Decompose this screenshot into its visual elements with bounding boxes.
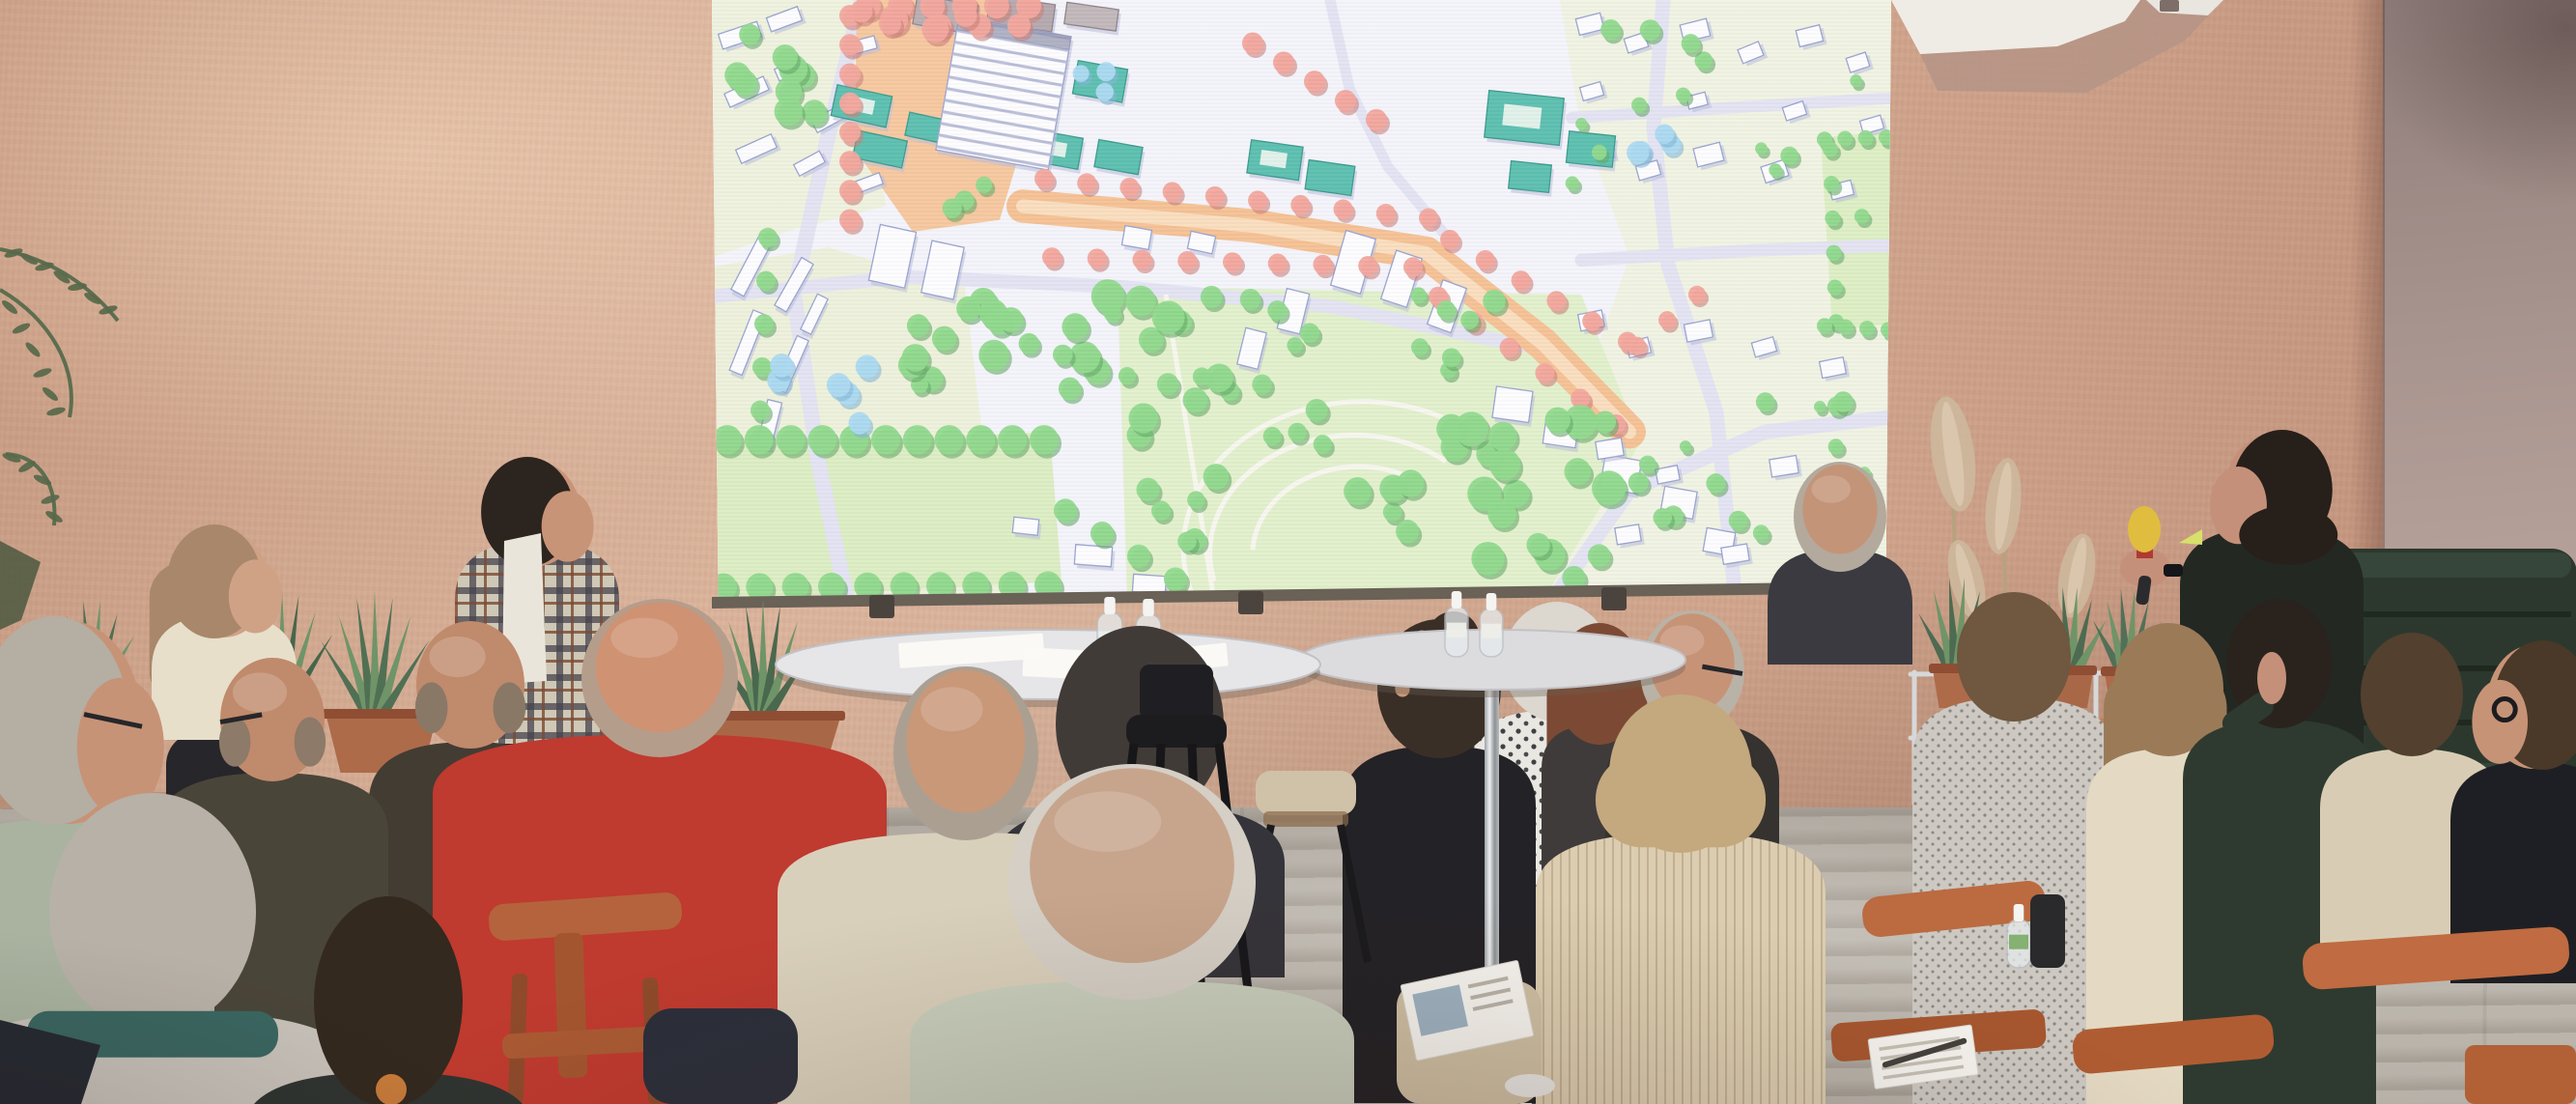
head-shine	[1054, 791, 1161, 851]
bottle-label	[2009, 935, 2028, 949]
person-hair	[314, 896, 463, 1104]
olive-leaf	[3, 246, 23, 260]
person-hair-nape	[2239, 505, 2337, 564]
watch	[2164, 564, 2183, 577]
person-face	[2472, 680, 2528, 764]
person-hair	[1957, 592, 2071, 722]
person-hair	[2361, 633, 2463, 756]
scene-layer	[0, 0, 2576, 1104]
head-shine	[1812, 475, 1851, 503]
chair-rail	[2465, 1045, 2576, 1104]
olive-leaf	[41, 385, 60, 403]
person-face	[229, 559, 282, 633]
olive-leaf	[11, 322, 31, 336]
sansevieria-left	[321, 591, 429, 715]
screen-foot	[1238, 591, 1263, 614]
audience-shoulder	[643, 1008, 798, 1104]
head-shine	[429, 637, 485, 677]
sweater-logo	[2179, 529, 2202, 545]
screen-foot	[1601, 587, 1627, 610]
person-body	[1536, 833, 1826, 1104]
chair-slat	[553, 933, 587, 1079]
vent-notch	[2160, 0, 2179, 12]
bottle-cap	[1143, 599, 1153, 616]
thermos	[2030, 894, 2065, 968]
olive-branch	[0, 246, 119, 630]
person-hair-side	[415, 682, 448, 733]
head-shine	[920, 687, 982, 731]
person-face	[542, 491, 594, 561]
olive-frond	[0, 541, 41, 630]
head-shine	[610, 618, 678, 659]
bottle-label	[1482, 624, 1501, 638]
person-hair-side	[219, 717, 250, 766]
olive-leaf	[32, 366, 52, 380]
olive-leaf	[23, 340, 42, 358]
bottle-label	[1447, 623, 1466, 637]
person-hair-side	[494, 682, 526, 733]
stool-seat	[1263, 811, 1348, 827]
bottle-cap	[2014, 904, 2024, 921]
pampas-plume	[1981, 456, 2025, 555]
chair-rail	[2465, 1045, 2576, 1104]
hand	[2257, 652, 2286, 704]
olive-leaf	[45, 406, 66, 417]
bottle-cap	[1486, 593, 1497, 610]
bottle-cap	[1452, 591, 1462, 609]
screen-foot	[869, 595, 894, 618]
olive-stem	[0, 249, 118, 321]
vent-notch	[2160, 0, 2179, 12]
water-bottle	[1480, 593, 1503, 657]
head-shine	[233, 672, 287, 712]
person-hair	[49, 793, 256, 1031]
stool-back	[1140, 665, 1213, 721]
stool-cushion	[1256, 771, 1356, 815]
person-hair-side	[295, 717, 326, 766]
screen-foot	[869, 595, 894, 618]
sneaker	[1505, 1074, 1555, 1097]
microphone	[2128, 506, 2161, 552]
screen-foot	[1238, 591, 1263, 614]
chair-slat	[553, 933, 587, 1079]
screen-foot	[1601, 587, 1627, 610]
audience-front-bald	[1768, 462, 1912, 665]
stool-seat	[1126, 715, 1227, 748]
person-hair-bob	[1596, 752, 1766, 847]
olive-leaf	[98, 303, 118, 316]
olive-leaf	[40, 493, 60, 506]
event-hall-photo	[0, 0, 2576, 1104]
thermos	[2030, 894, 2065, 968]
water-bottle	[1445, 591, 1468, 657]
pampas-plume	[1924, 394, 1982, 515]
bottle-cap	[1104, 597, 1115, 614]
scrunchie	[376, 1074, 407, 1104]
audience-shoulder	[643, 1008, 798, 1104]
